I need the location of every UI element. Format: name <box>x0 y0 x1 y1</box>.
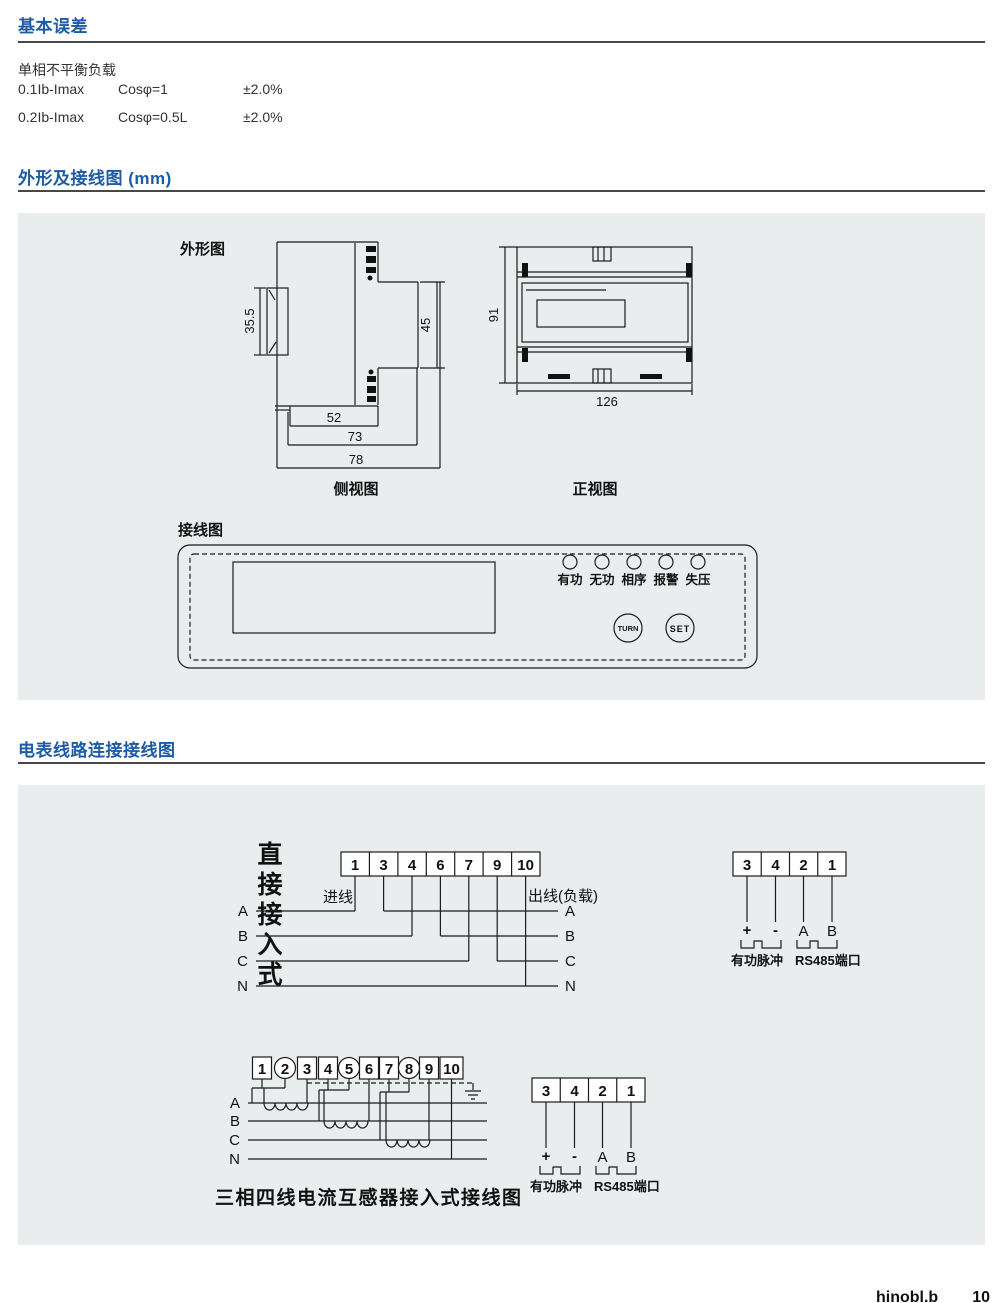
pulse-terminal-number: 4 <box>771 857 780 874</box>
pulse-terminal-number: 4 <box>570 1083 579 1100</box>
ct-phase-label: A <box>230 1095 240 1112</box>
front-view-caption: 正视图 <box>572 480 617 498</box>
pulse-pin-label: - <box>572 1148 577 1165</box>
pulse-label-rs485: RS485端口 <box>594 1179 660 1194</box>
outline-title: 外形及接线图 (mm) <box>18 164 172 189</box>
phase-label-right: C <box>565 953 576 970</box>
ct-terminal-number: 3 <box>303 1061 311 1078</box>
terminal-number: 9 <box>493 857 501 874</box>
pulse-symbol-icon <box>797 940 837 948</box>
pulse-pin-label: A <box>798 923 808 940</box>
phase-label-right: A <box>565 903 575 920</box>
terminal-number: 1 <box>351 857 359 874</box>
phase-label-right: B <box>565 928 575 945</box>
error-range: 0.2Ib-Imax <box>18 109 84 125</box>
basic-error-title: 基本误差 <box>18 12 88 37</box>
pulse-pin-label: + <box>743 922 752 939</box>
faceplate-label: 接线图 <box>178 521 223 539</box>
out-label: 出线(负载) <box>528 888 598 905</box>
faceplate-group: 接线图 有功 无功 相序 报警 失压 TURN SET <box>178 521 757 668</box>
ct-phase-label: C <box>229 1132 240 1149</box>
lcd-window <box>233 562 495 633</box>
terminal-number: 10 <box>517 857 534 874</box>
side-view-group: 外形图 <box>179 240 445 498</box>
display-window <box>537 300 625 327</box>
terminal-number: 3 <box>379 857 387 874</box>
ct-connect-group: 1 2 3 4 5 6 7 8 9 10 <box>215 1057 523 1209</box>
pulse-symbol-icon <box>540 1166 580 1174</box>
dim-label: 45 <box>418 318 433 332</box>
wiring-svg: 1 3 4 6 7 9 10 进线 出线(负载) A <box>18 785 985 1245</box>
basic-error-rule <box>18 41 985 43</box>
pulse-terminal-number: 3 <box>743 857 751 874</box>
led-label: 无功 <box>588 572 614 587</box>
side-view-caption: 侧视图 <box>333 480 378 498</box>
pulse-terminal-number: 3 <box>542 1083 550 1100</box>
error-range: 0.1Ib-Imax <box>18 81 84 97</box>
error-cos: Cosφ=1 <box>118 81 168 97</box>
pulse-symbol-icon <box>596 1166 636 1174</box>
ct-wires <box>252 1079 452 1159</box>
led-active-icon <box>563 555 577 569</box>
pulse-block-top: 3 4 2 1 + - A B 有功脉冲 RS485端口 <box>731 852 861 968</box>
pulse-wires <box>747 876 832 922</box>
set-button-label: SET <box>670 624 691 634</box>
pulse-pin-label: + <box>542 1148 551 1165</box>
phase-label-left: A <box>238 903 248 920</box>
ct-caption: 三相四线电流互感器接入式接线图 <box>215 1186 523 1209</box>
pulse-label-active: 有功脉冲 <box>731 953 783 968</box>
basic-error-subtitle: 单相不平衡负载 <box>18 60 116 80</box>
led-label: 相序 <box>621 572 647 587</box>
clip-detail <box>366 246 376 252</box>
ct-terminal-number: 1 <box>258 1061 266 1078</box>
dim-label: 91 <box>486 308 501 322</box>
led-label: 有功 <box>557 572 582 587</box>
terminal-number: 4 <box>408 857 417 874</box>
pulse-pin-label: - <box>773 922 778 939</box>
error-value: ±2.0% <box>243 81 283 97</box>
dim-label: 52 <box>327 410 341 425</box>
dim-label: 126 <box>596 394 618 409</box>
phase-label-left: C <box>237 953 248 970</box>
terminal-number: 7 <box>465 857 473 874</box>
error-cos: Cosφ=0.5L <box>118 109 187 125</box>
meter-wiring-rule <box>18 762 985 764</box>
pulse-symbol-icon <box>741 940 781 948</box>
pulse-pin-label: A <box>597 1149 607 1166</box>
footer-text: hinobl.b <box>876 1289 938 1303</box>
error-row: 0.1Ib-Imax Cosφ=1 ±2.0% <box>18 81 518 99</box>
error-value: ±2.0% <box>243 109 283 125</box>
pulse-pin-label: B <box>827 923 837 940</box>
page-footer: hinobl.b 10 <box>0 1289 990 1303</box>
pulse-label-active: 有功脉冲 <box>530 1179 582 1194</box>
datasheet-page: 基本误差 单相不平衡负载 0.1Ib-Imax Cosφ=1 ±2.0% 0.2… <box>0 0 1000 1303</box>
ct-terminal-number: 7 <box>385 1061 393 1078</box>
direct-connect-group: 1 3 4 6 7 9 10 进线 出线(负载) A <box>237 852 598 995</box>
ct-terminal-number: 2 <box>281 1061 289 1078</box>
direct-wires <box>256 876 558 986</box>
pulse-terminal-number: 1 <box>828 857 836 874</box>
pulse-pin-label: B <box>626 1149 636 1166</box>
outline-label: 外形图 <box>179 240 225 258</box>
ct-terminal-number: 6 <box>365 1061 373 1078</box>
outline-panel: 外形图 <box>18 213 985 700</box>
ct-terminal-number: 4 <box>324 1061 333 1078</box>
ground-icon <box>465 1083 481 1099</box>
footer-page-number: 10 <box>972 1289 990 1303</box>
led-phase-icon <box>627 555 641 569</box>
ct-phase-label: N <box>229 1151 240 1168</box>
dim-label: 73 <box>348 429 362 444</box>
meter-wiring-panel: 直接接入式 1 3 4 6 7 9 10 <box>18 785 985 1245</box>
outline-drawing-svg: 外形图 <box>18 213 985 700</box>
error-row: 0.2Ib-Imax Cosφ=0.5L ±2.0% <box>18 109 518 127</box>
phase-label-left: N <box>237 978 248 995</box>
ct-terminal-number: 8 <box>405 1061 413 1078</box>
meter-wiring-title: 电表线路连接接线图 <box>18 736 176 761</box>
ct-terminal-number: 5 <box>345 1061 353 1078</box>
terminal-number: 6 <box>436 857 444 874</box>
pulse-wires <box>546 1102 631 1148</box>
pulse-terminal-number: 2 <box>799 857 807 874</box>
ct-phase-label: B <box>230 1113 240 1130</box>
pulse-label-rs485: RS485端口 <box>795 953 861 968</box>
led-label: 失压 <box>685 572 711 587</box>
ct-terminal-number: 10 <box>443 1061 460 1078</box>
front-view-group: 91 126 正视图 <box>486 247 692 498</box>
led-label: 报警 <box>653 572 679 587</box>
dim-label: 35.5 <box>242 308 257 333</box>
pulse-terminal-number: 1 <box>627 1083 635 1100</box>
turn-button-label: TURN <box>618 624 639 633</box>
outline-rule <box>18 190 985 192</box>
pulse-terminal-number: 2 <box>598 1083 606 1100</box>
in-label: 进线 <box>323 889 353 906</box>
led-reactive-icon <box>595 555 609 569</box>
ct-terminal-number: 9 <box>425 1061 433 1078</box>
dim-label: 78 <box>349 452 363 467</box>
dim-front-height <box>499 247 517 383</box>
phase-label-right: N <box>565 978 576 995</box>
phase-label-left: B <box>238 928 248 945</box>
led-alarm-icon <box>659 555 673 569</box>
pulse-block-bottom: 3 4 2 1 + - A B 有功脉冲 RS485端口 <box>530 1078 660 1194</box>
led-voltloss-icon <box>691 555 705 569</box>
